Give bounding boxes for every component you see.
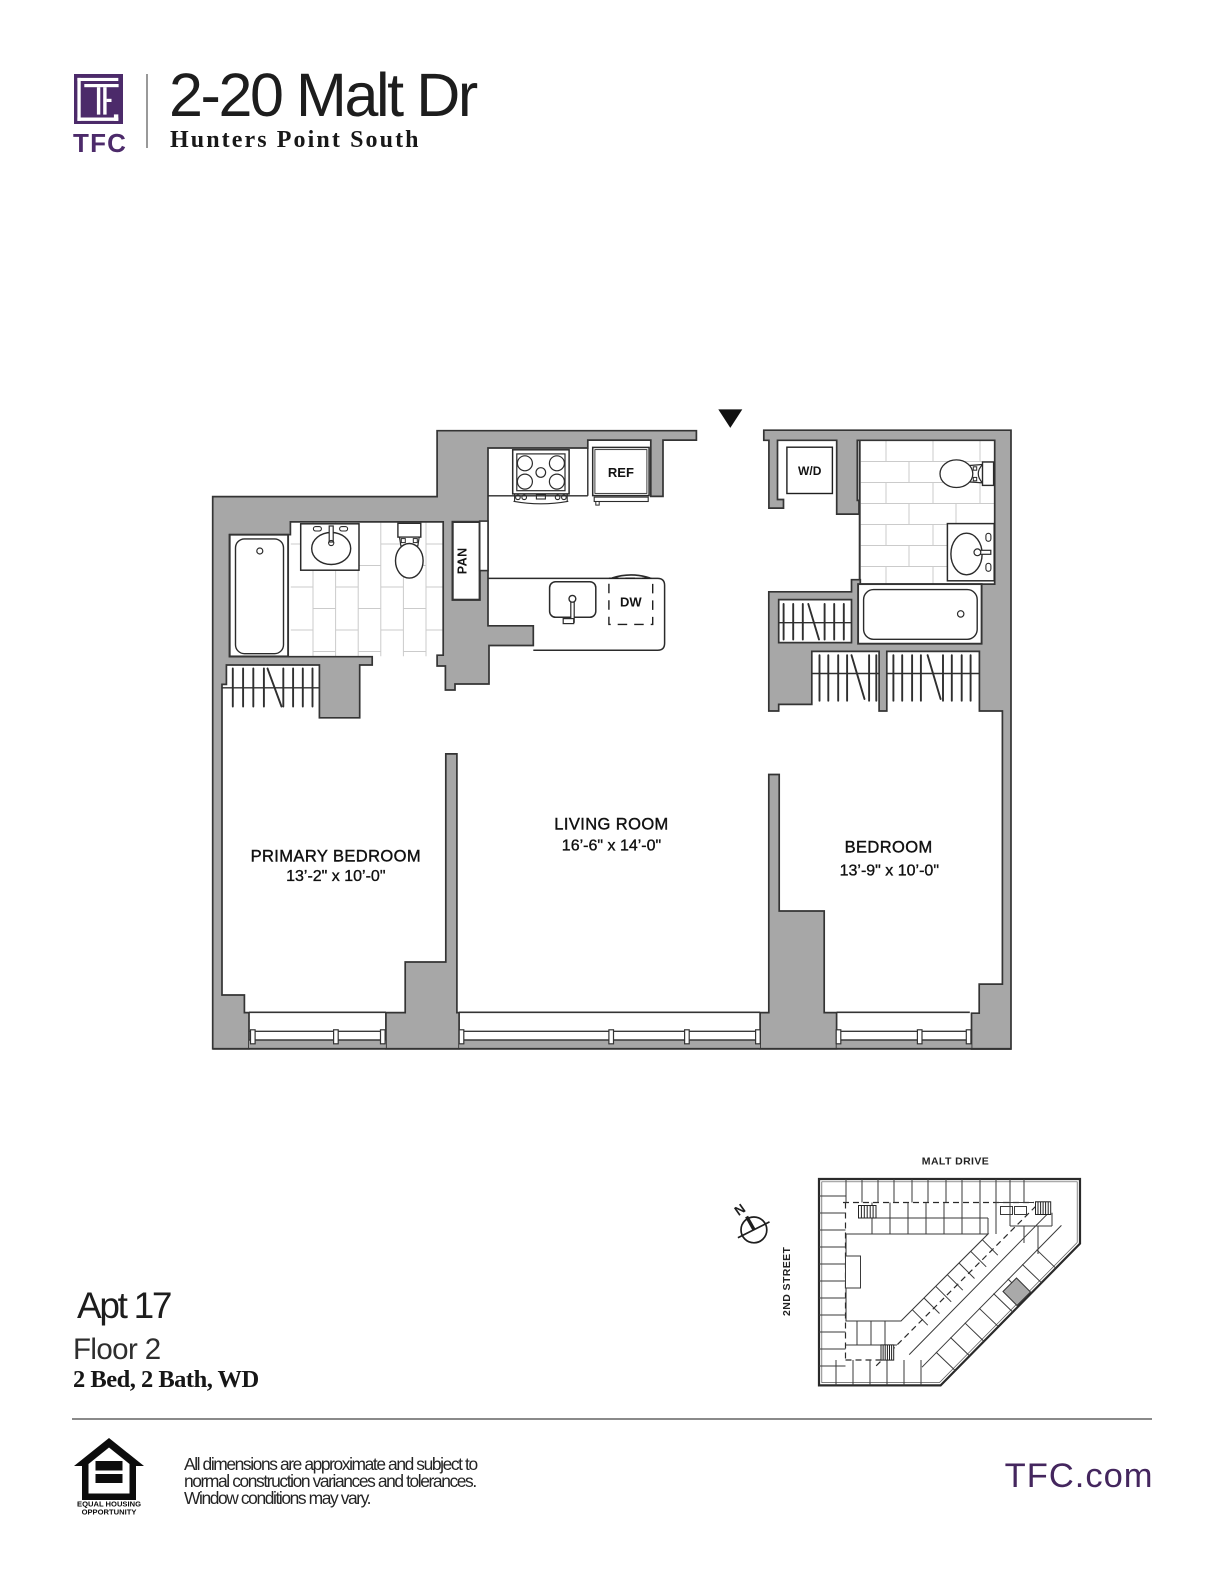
svg-text:MALT DRIVE: MALT DRIVE (922, 1156, 989, 1168)
svg-text:2ND STREET: 2ND STREET (781, 1246, 793, 1316)
svg-text:N: N (732, 1201, 749, 1219)
svg-text:OPPORTUNITY: OPPORTUNITY (82, 1508, 137, 1517)
